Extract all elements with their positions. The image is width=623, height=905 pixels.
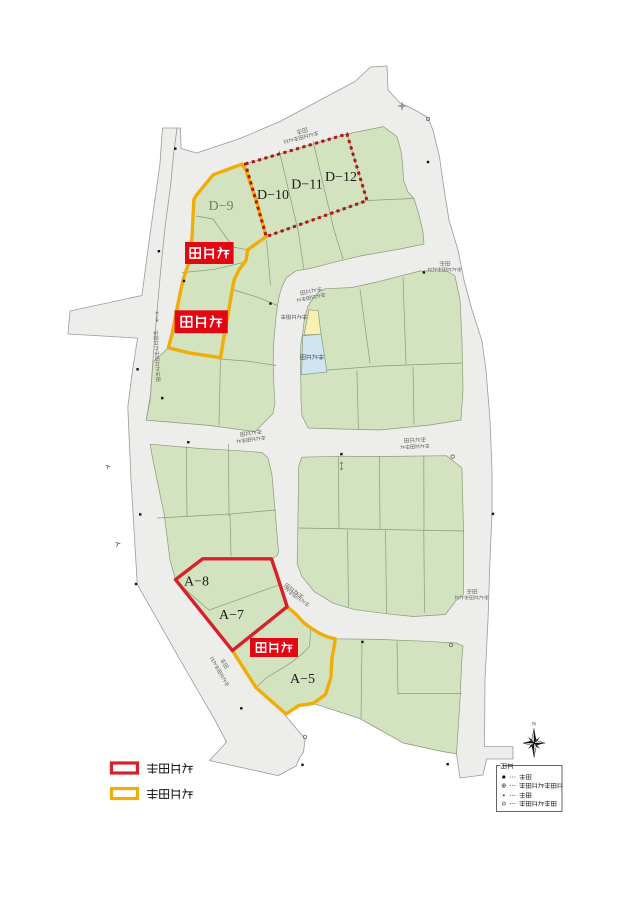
svg-text:A−8: A−8 (184, 575, 209, 590)
svg-text:D−11: D−11 (291, 178, 323, 193)
svg-text:D−10: D−10 (257, 188, 289, 203)
svg-text:A−7: A−7 (219, 608, 244, 623)
svg-text:N: N (532, 722, 536, 728)
svg-text:D−12: D−12 (325, 170, 357, 185)
svg-text:A−5: A−5 (290, 672, 315, 687)
svg-text:D−9: D−9 (208, 199, 233, 214)
